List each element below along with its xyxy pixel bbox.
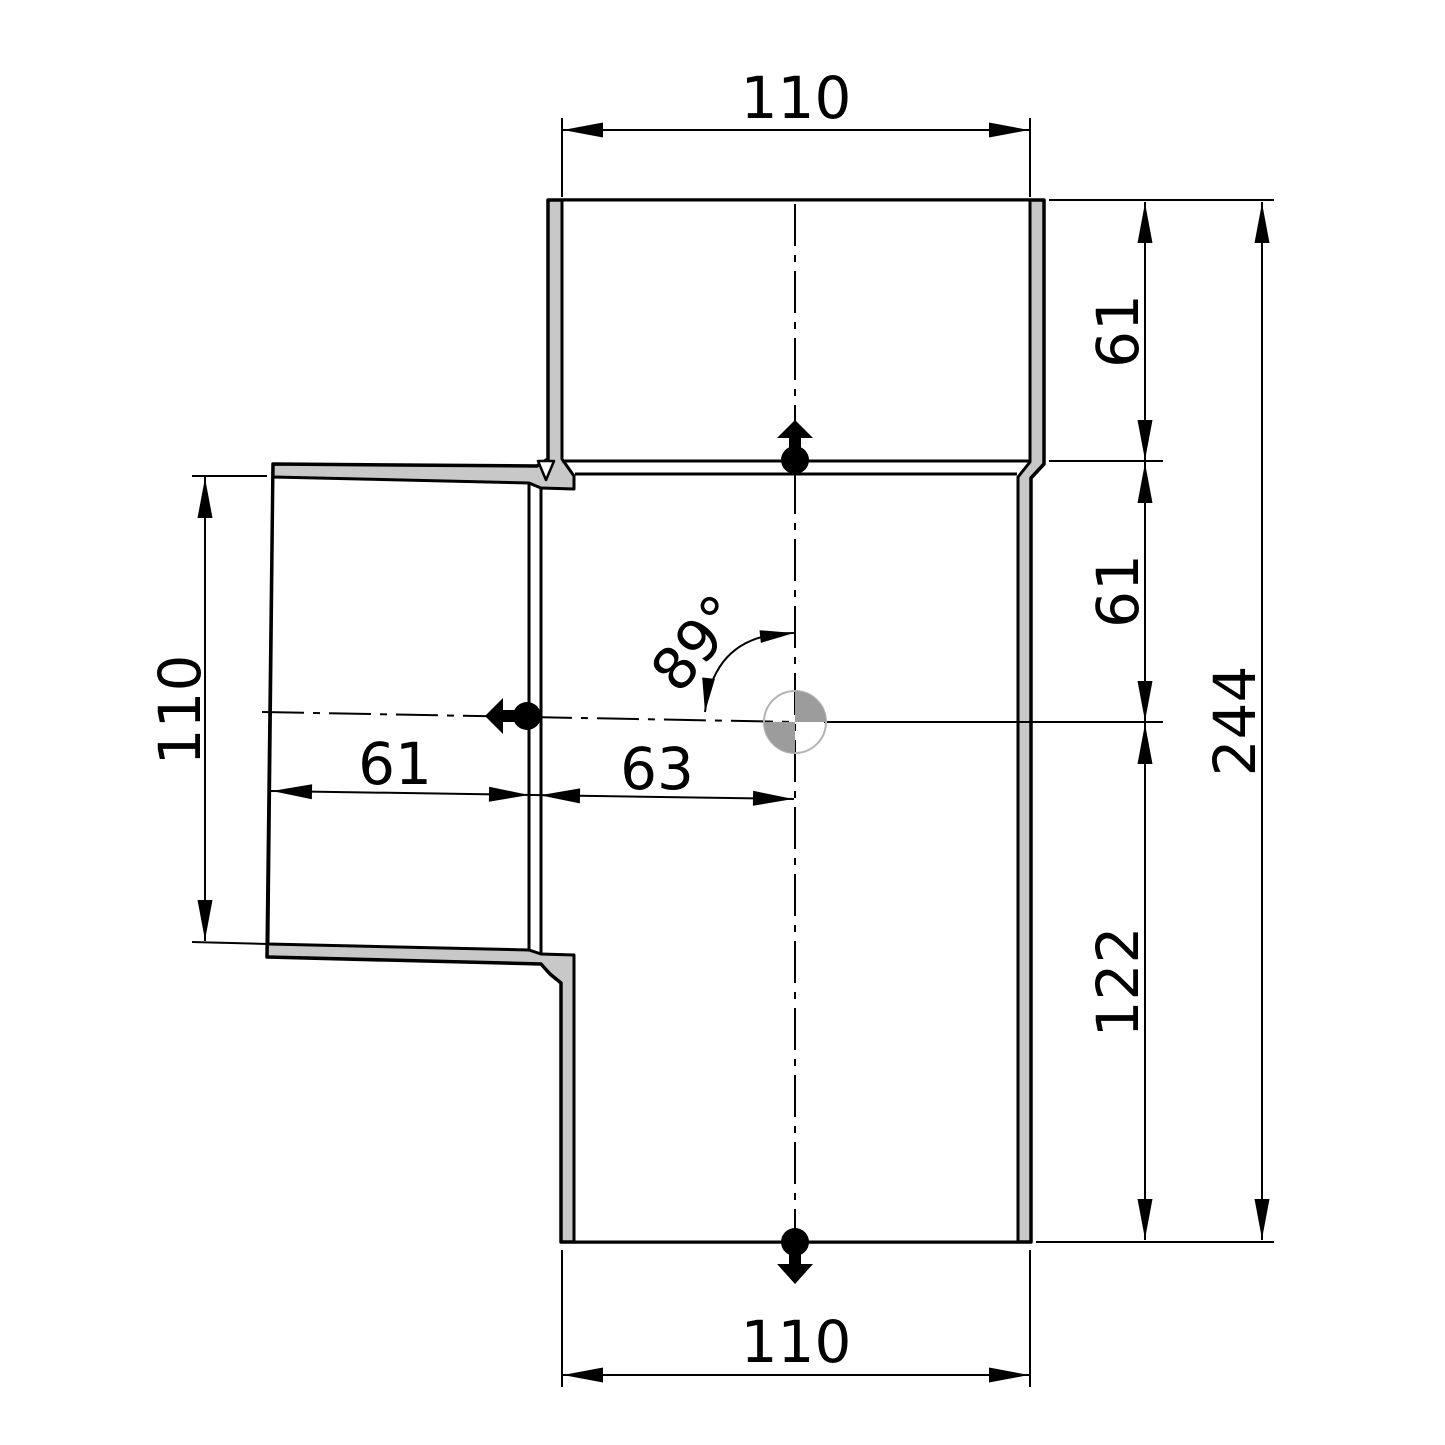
dim-right-branch-offset-label: 61 xyxy=(1084,554,1152,628)
flow-arrow-down-icon xyxy=(777,1254,813,1284)
center-datum-marker xyxy=(764,691,826,753)
connection-dot-bottom xyxy=(781,1228,809,1256)
dim-overall-length-label: 244 xyxy=(1201,666,1269,777)
dim-branch-opening: 110 xyxy=(146,476,267,944)
dim-branch-center-offset-label: 63 xyxy=(620,735,694,803)
dim-outlet-offset-label: 122 xyxy=(1084,927,1152,1038)
dim-right-socket-depth-label: 61 xyxy=(1084,294,1152,368)
connection-dot-branch xyxy=(513,702,541,730)
dim-overall-length: 244 xyxy=(1201,202,1270,1240)
dim-branch-socket-depth-label: 61 xyxy=(358,730,432,798)
dim-top-width-label: 110 xyxy=(741,64,852,132)
dim-bottom-width-label: 110 xyxy=(741,1308,852,1376)
pipe-tee-technical-drawing: 110 61 61 122 244 110 xyxy=(0,0,1445,1445)
connection-dot-top xyxy=(781,446,809,474)
dim-top-width: 110 xyxy=(562,64,1030,197)
connection-marker-bottom xyxy=(777,1228,813,1284)
dim-branch-opening-label: 110 xyxy=(146,655,214,766)
